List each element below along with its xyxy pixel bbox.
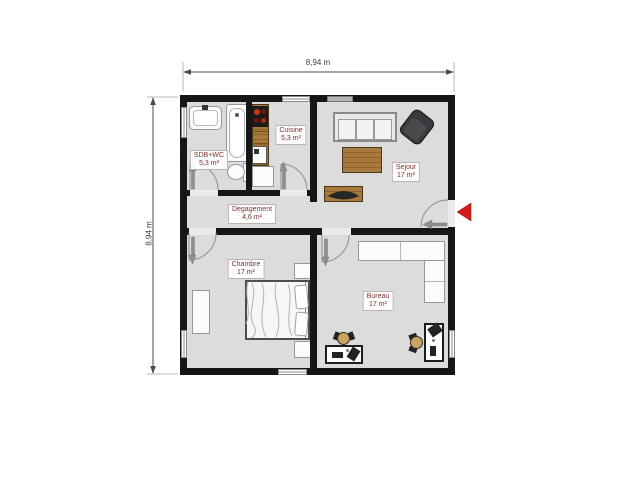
door-swing-arrow-icon: [423, 220, 447, 229]
plan-annotations: [0, 0, 640, 480]
room-name: Bureau: [367, 293, 390, 301]
room-label-bureau: Bureau 17 m²: [363, 291, 394, 311]
room-name: Chambre: [232, 261, 261, 269]
duvet-folds: [246, 282, 292, 338]
room-area: 17 m²: [396, 172, 416, 180]
room-label-degagement: Degagement 4,6 m²: [228, 204, 276, 224]
floorplan-canvas: 8,94 m 8,94 m SDB+WC 5,3 m² Cuisine 5,3 …: [0, 0, 640, 480]
room-name: Cuisine: [279, 127, 302, 135]
room-name: SDB+WC: [194, 152, 224, 160]
sideboard-decor-icon: [328, 191, 359, 200]
room-area: 17 m²: [367, 301, 390, 309]
room-label-chambre: Chambre 17 m²: [228, 259, 265, 279]
room-area: 5,3 m²: [279, 135, 302, 143]
room-name: Degagement: [232, 206, 272, 214]
dimension-label-left: 8,94 m: [145, 206, 154, 262]
entrance-arrow-icon: [457, 203, 471, 221]
room-name: Sejour: [396, 164, 416, 172]
room-area: 4,6 m²: [232, 214, 272, 222]
dimension-label-top: 8,94 m: [260, 58, 376, 67]
dimension-lines: [147, 62, 454, 374]
room-area: 17 m²: [232, 269, 261, 277]
room-label-cuisine: Cuisine 5,3 m²: [275, 125, 306, 145]
room-area: 5,3 m²: [194, 160, 224, 168]
room-label-sejour: Sejour 17 m²: [392, 162, 420, 182]
room-label-sdb: SDB+WC 5,3 m²: [190, 150, 228, 170]
